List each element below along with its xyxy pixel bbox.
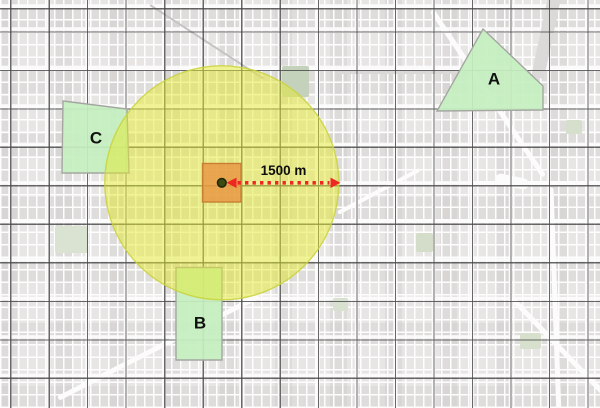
distance-label: 1500 m (261, 163, 307, 178)
center-point (218, 179, 227, 188)
site-label-c: C (90, 129, 102, 148)
site-label-a: A (488, 70, 500, 89)
site-label-b: B (194, 314, 206, 333)
analysis-overlay: ABC 1500 m (0, 0, 600, 408)
map-canvas[interactable]: ABC 1500 m (0, 0, 600, 408)
